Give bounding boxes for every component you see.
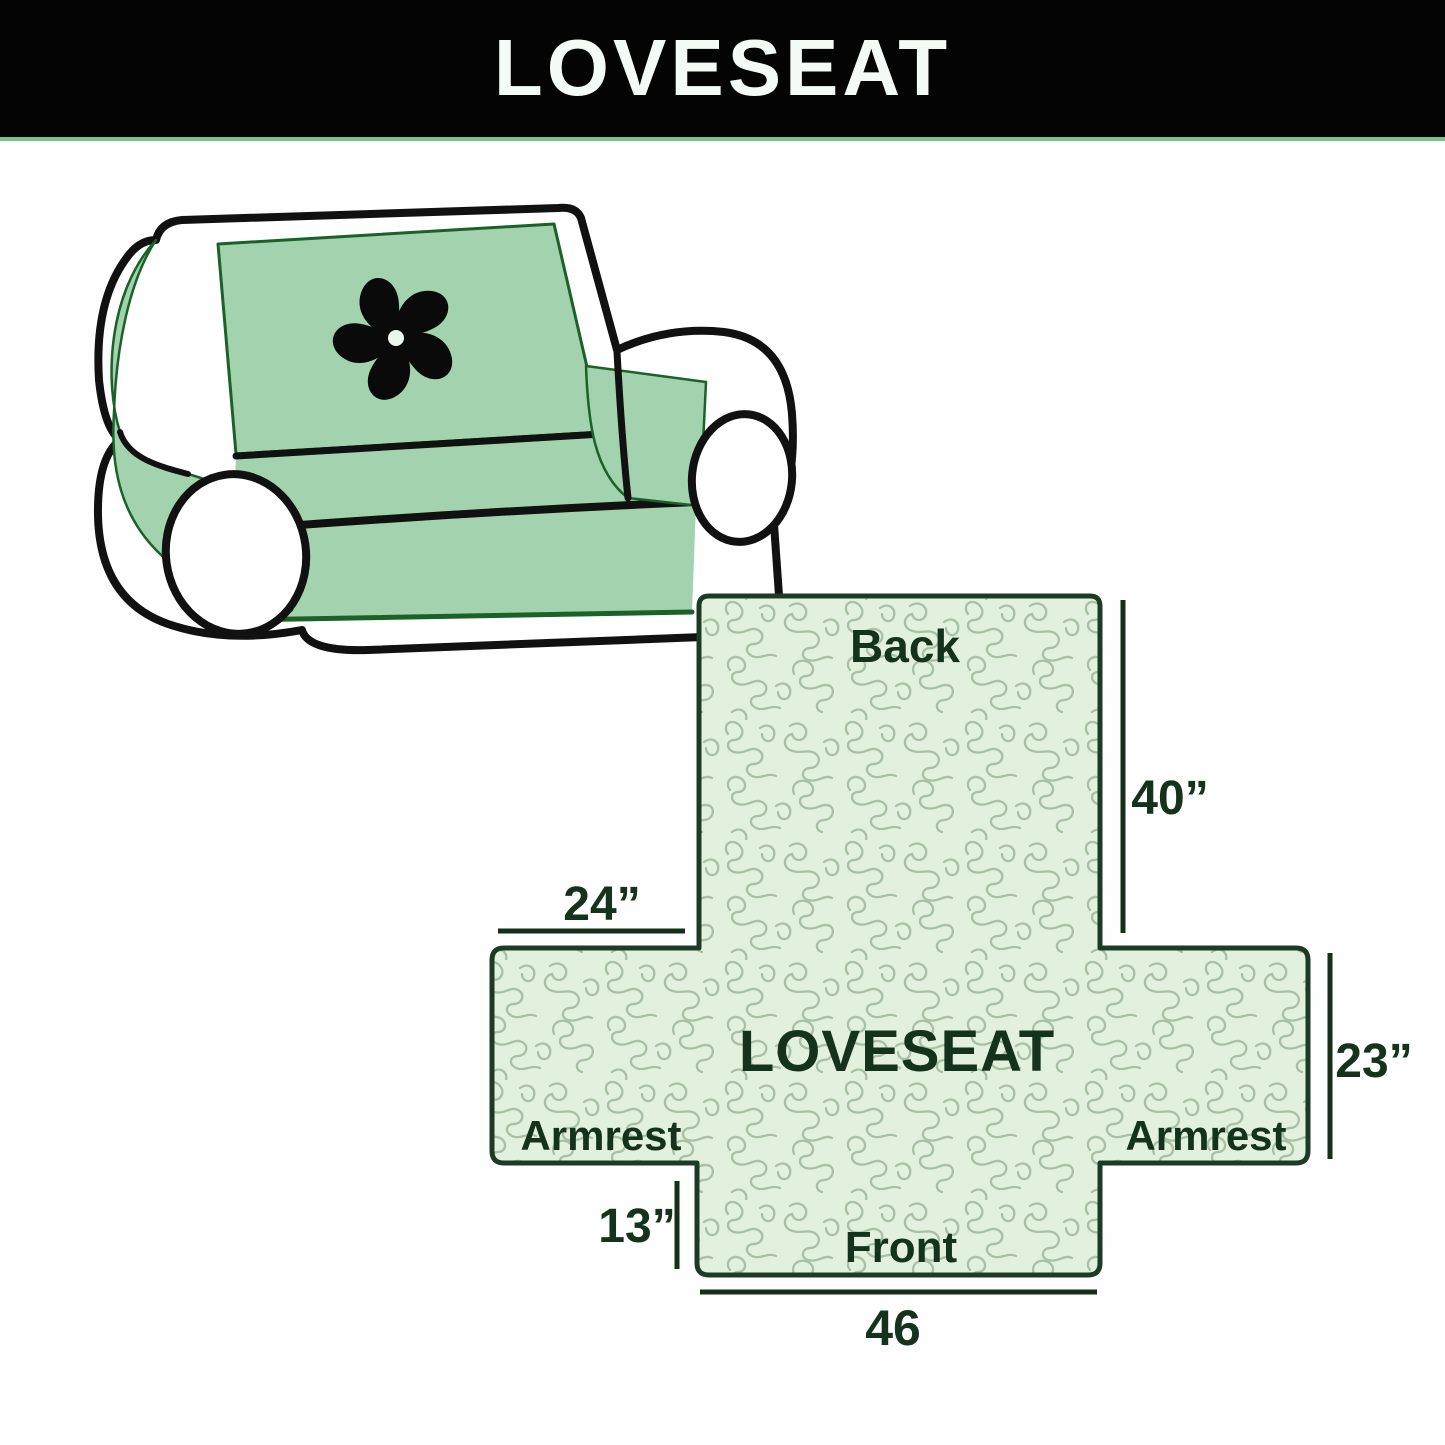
- armrest-left-label: Armrest: [520, 1115, 681, 1157]
- armrest-right-label: Armrest: [1125, 1115, 1286, 1157]
- dim-armrest-width-label: 24”: [563, 881, 640, 929]
- dim-front-width-label: 46: [865, 1303, 921, 1353]
- loveseat-cover-infographic: LOVESEAT: [0, 0, 1445, 1445]
- illustration-canvas: [0, 0, 1445, 1445]
- front-section-label: Front: [845, 1226, 957, 1270]
- dim-back-height-label: 40”: [1131, 775, 1208, 823]
- diagram-center-label: LOVESEAT: [739, 1023, 1055, 1081]
- dim-armrest-height-label: 23”: [1335, 1038, 1412, 1086]
- cover-pattern-outline: [492, 596, 1308, 1275]
- sofa-illustration: [98, 208, 798, 650]
- dim-front-skirt-height-label: 13”: [598, 1203, 675, 1251]
- back-section-label: Back: [850, 623, 960, 669]
